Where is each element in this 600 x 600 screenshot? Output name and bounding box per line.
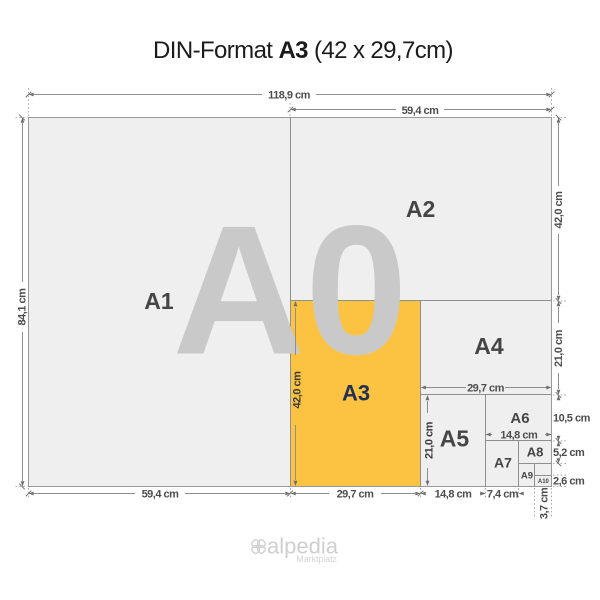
svg-text:10,5 cm: 10,5 cm xyxy=(553,413,591,425)
svg-text:A5: A5 xyxy=(440,426,470,452)
svg-text:A6: A6 xyxy=(510,410,529,427)
svg-text:A9: A9 xyxy=(521,470,533,481)
svg-text:A8: A8 xyxy=(527,445,544,460)
svg-text:5,2 cm: 5,2 cm xyxy=(553,447,585,459)
svg-text:7,4 cm: 7,4 cm xyxy=(487,489,519,501)
svg-text:21,0 cm: 21,0 cm xyxy=(553,329,565,367)
svg-text:29,7 cm: 29,7 cm xyxy=(337,489,375,501)
svg-text:A0: A0 xyxy=(172,187,407,393)
svg-text:A3: A3 xyxy=(342,381,370,406)
svg-text:21,0 cm: 21,0 cm xyxy=(424,421,436,459)
svg-text:A2: A2 xyxy=(406,196,435,222)
svg-text:59,4 cm: 59,4 cm xyxy=(142,489,180,501)
svg-text:Marktplatz: Marktplatz xyxy=(296,554,337,564)
svg-text:A7: A7 xyxy=(494,455,512,471)
svg-text:14,8 cm: 14,8 cm xyxy=(435,489,473,501)
svg-text:A10: A10 xyxy=(538,479,550,485)
svg-text:2,6 cm: 2,6 cm xyxy=(553,476,585,488)
svg-text:A4: A4 xyxy=(474,333,504,359)
svg-text:42,0 cm: 42,0 cm xyxy=(553,191,565,229)
svg-text:3,7 cm: 3,7 cm xyxy=(539,487,551,519)
svg-text:DIN-Format A3 (42 x 29,7cm): DIN-Format A3 (42 x 29,7cm) xyxy=(153,37,453,64)
svg-text:118,9 cm: 118,9 cm xyxy=(268,90,311,102)
svg-text:A1: A1 xyxy=(144,288,174,314)
svg-text:14,8 cm: 14,8 cm xyxy=(500,430,538,442)
svg-text:59,4 cm: 59,4 cm xyxy=(402,105,440,117)
svg-text:42,0 cm: 42,0 cm xyxy=(292,371,304,409)
svg-text:29,7 cm: 29,7 cm xyxy=(467,383,505,395)
svg-text:84,1 cm: 84,1 cm xyxy=(17,288,29,326)
